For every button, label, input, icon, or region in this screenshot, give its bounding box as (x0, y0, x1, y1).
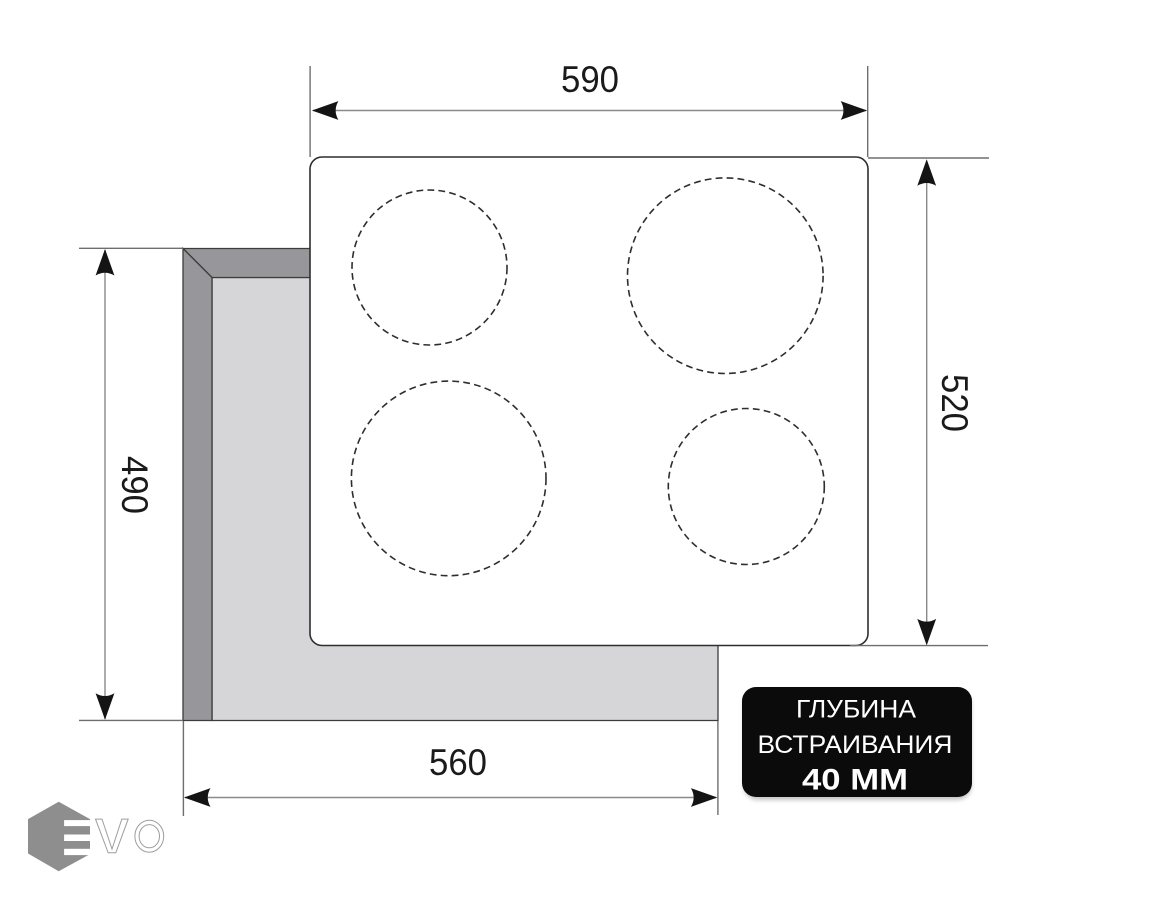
svg-text:520: 520 (934, 374, 976, 432)
svg-text:ВСТРАИВАНИЯ: ВСТРАИВАНИЯ (758, 731, 953, 759)
svg-text:590: 590 (561, 58, 619, 100)
svg-text:490: 490 (114, 456, 156, 514)
svg-text:40 ММ: 40 ММ (802, 764, 908, 797)
svg-text:560: 560 (429, 741, 487, 783)
svg-text:ГЛУБИНА: ГЛУБИНА (796, 696, 916, 724)
